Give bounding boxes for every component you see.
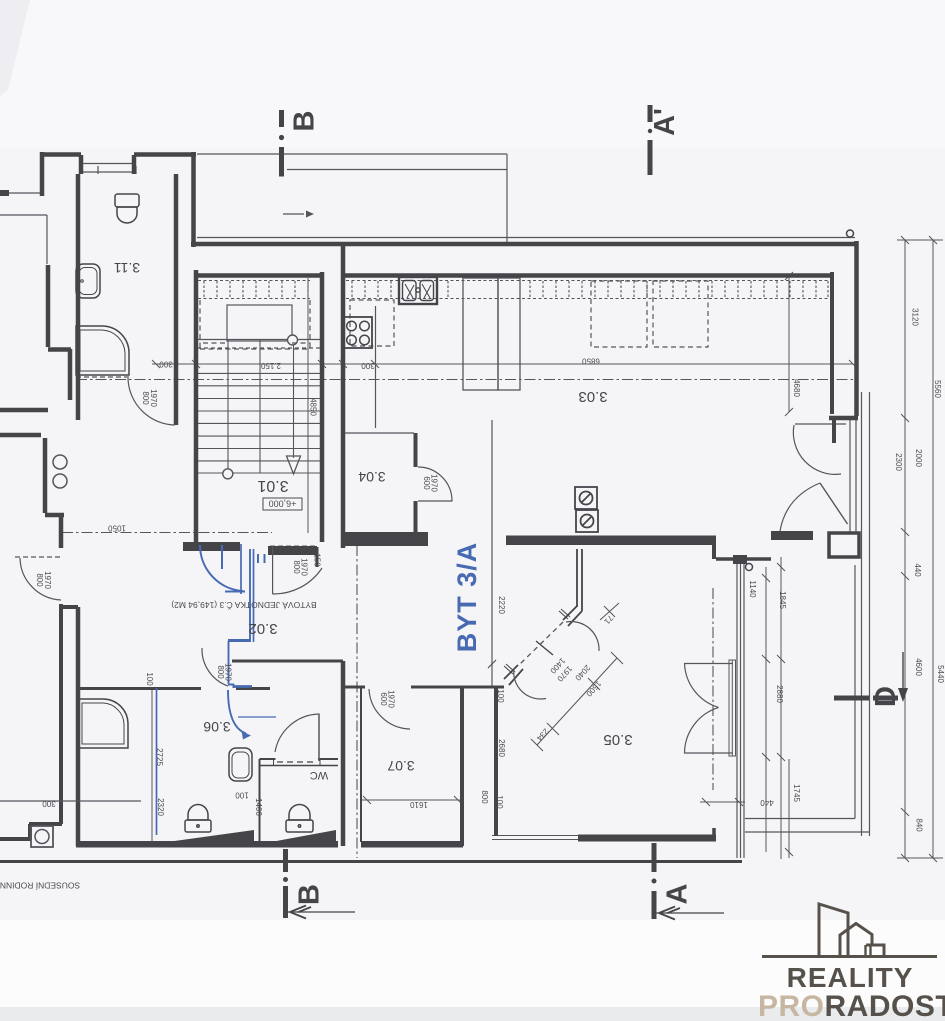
svg-text:4600: 4600 xyxy=(914,658,923,676)
svg-text:3.01: 3.01 xyxy=(257,477,288,494)
svg-text:2300: 2300 xyxy=(894,453,903,471)
svg-text:300: 300 xyxy=(159,360,173,369)
svg-text:2680: 2680 xyxy=(497,739,506,757)
svg-text:2220: 2220 xyxy=(497,596,506,614)
svg-text:4850: 4850 xyxy=(309,398,318,416)
svg-text:150: 150 xyxy=(313,553,322,567)
svg-text:1970: 1970 xyxy=(43,571,52,589)
svg-text:PRORADOST: PRORADOST xyxy=(758,990,945,1021)
svg-text:REALITY: REALITY xyxy=(787,962,914,993)
svg-text:100: 100 xyxy=(235,791,249,800)
svg-text:D: D xyxy=(870,686,902,707)
svg-text:2.150: 2.150 xyxy=(260,361,281,370)
svg-text:1050: 1050 xyxy=(108,524,126,533)
svg-text:2320: 2320 xyxy=(156,798,165,816)
svg-text:6850: 6850 xyxy=(582,357,600,366)
svg-text:SOUSEDNÍ RODINN: SOUSEDNÍ RODINN xyxy=(0,881,80,891)
svg-text:3.03: 3.03 xyxy=(578,388,607,405)
svg-text:1970: 1970 xyxy=(387,690,396,708)
svg-text:B: B xyxy=(294,884,326,905)
svg-text:800: 800 xyxy=(480,790,489,804)
svg-text:440: 440 xyxy=(913,563,922,577)
svg-text:3.06: 3.06 xyxy=(203,719,230,735)
svg-text:1970: 1970 xyxy=(224,663,233,681)
svg-text:5560: 5560 xyxy=(933,380,942,398)
svg-text:BYT 3/A: BYT 3/A xyxy=(452,542,482,653)
svg-text:1970: 1970 xyxy=(149,389,158,407)
svg-text:2880: 2880 xyxy=(775,685,784,703)
svg-text:3120: 3120 xyxy=(911,308,920,326)
svg-text:100: 100 xyxy=(495,795,504,809)
svg-text:840: 840 xyxy=(915,818,924,832)
svg-text:100: 100 xyxy=(496,689,505,703)
svg-text:2725: 2725 xyxy=(155,748,164,766)
svg-text:440: 440 xyxy=(760,798,774,807)
svg-text:100: 100 xyxy=(145,672,154,686)
svg-text:1610: 1610 xyxy=(410,800,428,809)
svg-text:2000: 2000 xyxy=(914,449,923,467)
svg-text:3.02: 3.02 xyxy=(248,620,277,637)
svg-text:300: 300 xyxy=(42,799,56,808)
svg-text:800: 800 xyxy=(141,391,150,405)
svg-text:1745: 1745 xyxy=(792,784,801,802)
svg-text:300: 300 xyxy=(361,361,375,370)
svg-text:3.04: 3.04 xyxy=(358,469,385,485)
svg-text:4680: 4680 xyxy=(792,379,801,397)
svg-text:1400: 1400 xyxy=(254,798,263,816)
svg-text:800: 800 xyxy=(35,573,44,587)
svg-text:5440: 5440 xyxy=(936,665,945,683)
svg-text:A': A' xyxy=(649,108,681,136)
svg-text:BYTOVÁ JEDNOTKA Č.3 (149,94 M2: BYTOVÁ JEDNOTKA Č.3 (149,94 M2) xyxy=(171,600,317,610)
svg-text:WC: WC xyxy=(310,769,328,781)
svg-text:1140: 1140 xyxy=(748,580,757,598)
svg-text:1970: 1970 xyxy=(430,474,439,492)
svg-text:B: B xyxy=(289,111,321,132)
svg-text:+6,000: +6,000 xyxy=(269,499,297,509)
svg-text:3.05: 3.05 xyxy=(603,731,632,748)
svg-text:1970: 1970 xyxy=(300,558,309,576)
svg-text:3.11: 3.11 xyxy=(114,260,140,276)
svg-text:3.07: 3.07 xyxy=(387,758,414,774)
svg-text:A: A xyxy=(662,883,694,904)
svg-text:1845: 1845 xyxy=(778,591,787,609)
